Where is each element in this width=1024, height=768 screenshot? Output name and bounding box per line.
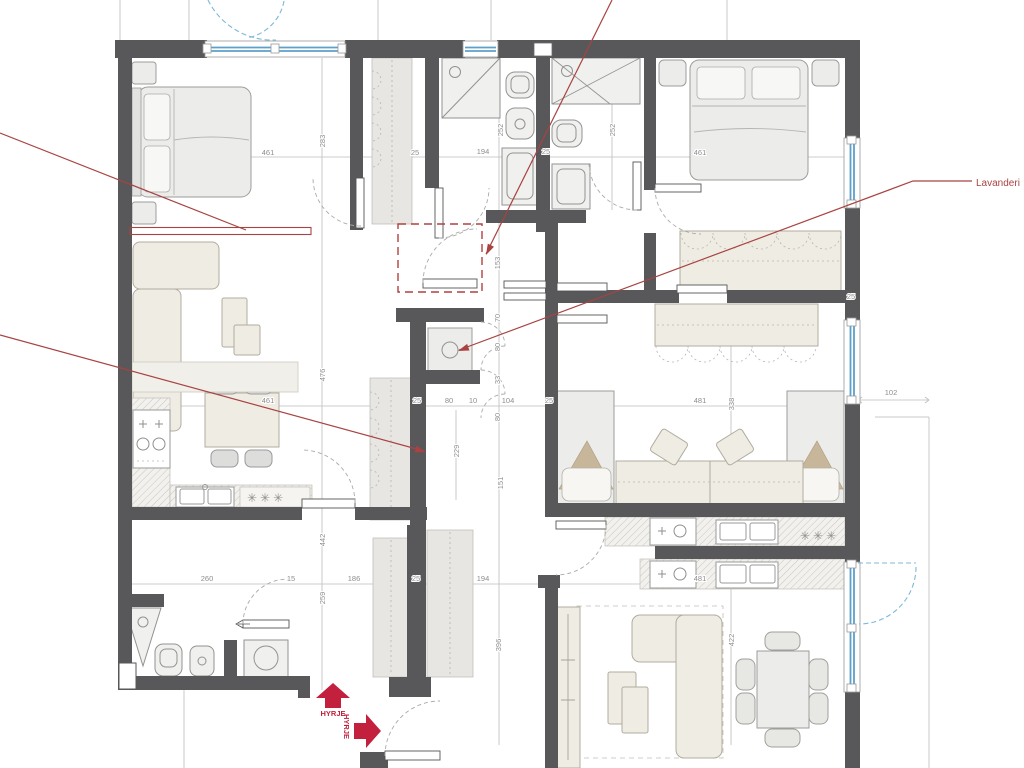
- bed-headboard: [132, 88, 141, 196]
- chair: [736, 659, 755, 690]
- wardrobe: [680, 231, 841, 291]
- dimension-label: 252: [496, 124, 505, 137]
- red-highlight-wall: [130, 228, 311, 235]
- dimension-label: 338: [727, 398, 736, 411]
- bathroom-bottom-left: [125, 608, 288, 677]
- bathroom-left-top: [442, 58, 538, 205]
- sliding-door-leaf: [677, 285, 727, 293]
- closet-corridor-mid: [370, 378, 413, 520]
- door-leaf: [557, 283, 607, 291]
- door-leaf: [435, 188, 443, 238]
- kitchen-counter-top: [132, 362, 298, 392]
- dimension-label: 461: [694, 148, 707, 157]
- nightstand: [132, 62, 156, 84]
- wall-niche: [119, 663, 136, 689]
- dimension-label: 25: [413, 396, 421, 405]
- dimension-label: 252: [608, 124, 617, 137]
- entry-label-1: HYRJE: [320, 709, 345, 718]
- red-arrowhead: [486, 244, 494, 255]
- chair: [765, 632, 800, 650]
- coffee-table: [234, 325, 260, 355]
- dimension-label: 442: [318, 534, 327, 547]
- dimension-label: 194: [477, 574, 490, 583]
- chair: [809, 659, 828, 690]
- dimension-label: 80: [493, 413, 502, 421]
- desk-sofa: [616, 461, 803, 504]
- dimension-label: 25: [545, 396, 553, 405]
- stove: [650, 561, 696, 588]
- bedroom1-furniture: [132, 62, 251, 224]
- door-leaf: [302, 499, 355, 508]
- dimension-label: 33: [493, 376, 502, 384]
- dining-table: [757, 651, 809, 728]
- floor-plan-drawing: ✳✳✳: [0, 0, 1024, 768]
- bidet: [506, 108, 534, 139]
- door-leaf: [655, 184, 701, 192]
- dimension-label: 260: [201, 574, 214, 583]
- dimension-label: 104: [502, 396, 515, 405]
- pillow: [144, 94, 170, 140]
- window-top-large: [203, 41, 346, 57]
- entry-arrow-right-icon: [354, 714, 381, 748]
- fridge-symbol: ✳✳✳: [247, 491, 286, 505]
- dimension-label: 476: [318, 369, 327, 382]
- dimension-label: 80: [445, 396, 453, 405]
- nightstand: [659, 60, 686, 86]
- dimension-label: 25: [412, 574, 420, 583]
- dimension-label: 15: [287, 574, 295, 583]
- stove: [133, 410, 170, 468]
- dimension-label: 186: [348, 574, 361, 583]
- dimension-label: 461: [262, 148, 275, 157]
- door-leaf: [633, 162, 641, 210]
- dimension-label: 25: [411, 148, 419, 157]
- nightstand: [132, 202, 156, 224]
- window-right-2: [844, 318, 860, 404]
- dimension-label: 102: [885, 388, 898, 397]
- door-leaf: [423, 279, 477, 288]
- pillow: [697, 67, 745, 99]
- chair: [765, 729, 800, 747]
- dimension-label: 481: [694, 396, 707, 405]
- pillow: [144, 146, 170, 192]
- dimension-label: 80: [493, 343, 502, 351]
- window-right-3: [844, 560, 860, 692]
- stove: [650, 518, 696, 545]
- door-leaf: [356, 178, 364, 228]
- chair: [736, 693, 755, 724]
- dimension-label: 194: [477, 147, 490, 156]
- door-leaf: [385, 751, 440, 760]
- dimension-label: 259: [318, 592, 327, 605]
- dimension-label: 10: [469, 396, 477, 405]
- dimension-label: 229: [452, 445, 461, 458]
- wall-duct: [534, 43, 552, 56]
- window-right-1: [844, 136, 860, 208]
- chair: [809, 693, 828, 724]
- dimension-label: 70: [493, 314, 502, 322]
- pillow: [562, 468, 611, 501]
- nightstand: [812, 60, 839, 86]
- dimension-label: 481: [694, 574, 707, 583]
- door-leaf: [504, 281, 546, 288]
- bidet: [190, 646, 214, 676]
- window-top-small: [463, 41, 498, 57]
- dimension-label: 461: [262, 396, 275, 405]
- dimension-label: 422: [727, 634, 736, 647]
- chair: [649, 428, 688, 466]
- chair: [211, 450, 238, 467]
- sink: [552, 164, 590, 209]
- dimension-label: 283: [318, 135, 327, 148]
- door-leaf: [557, 315, 607, 323]
- sofa-section: [133, 242, 219, 289]
- door-leaf: [556, 521, 606, 529]
- entry-label-2: HYRJE: [342, 714, 351, 739]
- fridge-symbol: ✳✳✳: [800, 529, 839, 543]
- closet-entry-left: [373, 538, 410, 677]
- entry-arrow-up-icon: [316, 683, 350, 708]
- dimension-label: 25: [847, 292, 855, 301]
- chair: [715, 428, 754, 466]
- door-leaf: [504, 293, 546, 300]
- chair: [245, 450, 272, 467]
- floor-plan-page: ✳✳✳: [0, 0, 1024, 768]
- kitchen-sink: [716, 562, 778, 588]
- sofa-section: [676, 615, 722, 758]
- pillow: [752, 67, 800, 99]
- bedroom2-furniture: [659, 60, 841, 291]
- dimension-label: 151: [496, 477, 505, 490]
- dimension-label: 396: [494, 639, 503, 652]
- lavanderi-label: Lavanderi: [976, 178, 1020, 189]
- dimension-label: 25: [542, 147, 550, 156]
- living2-furniture: [556, 606, 828, 768]
- dimension-label: 153: [493, 257, 502, 270]
- coffee-table: [622, 687, 648, 733]
